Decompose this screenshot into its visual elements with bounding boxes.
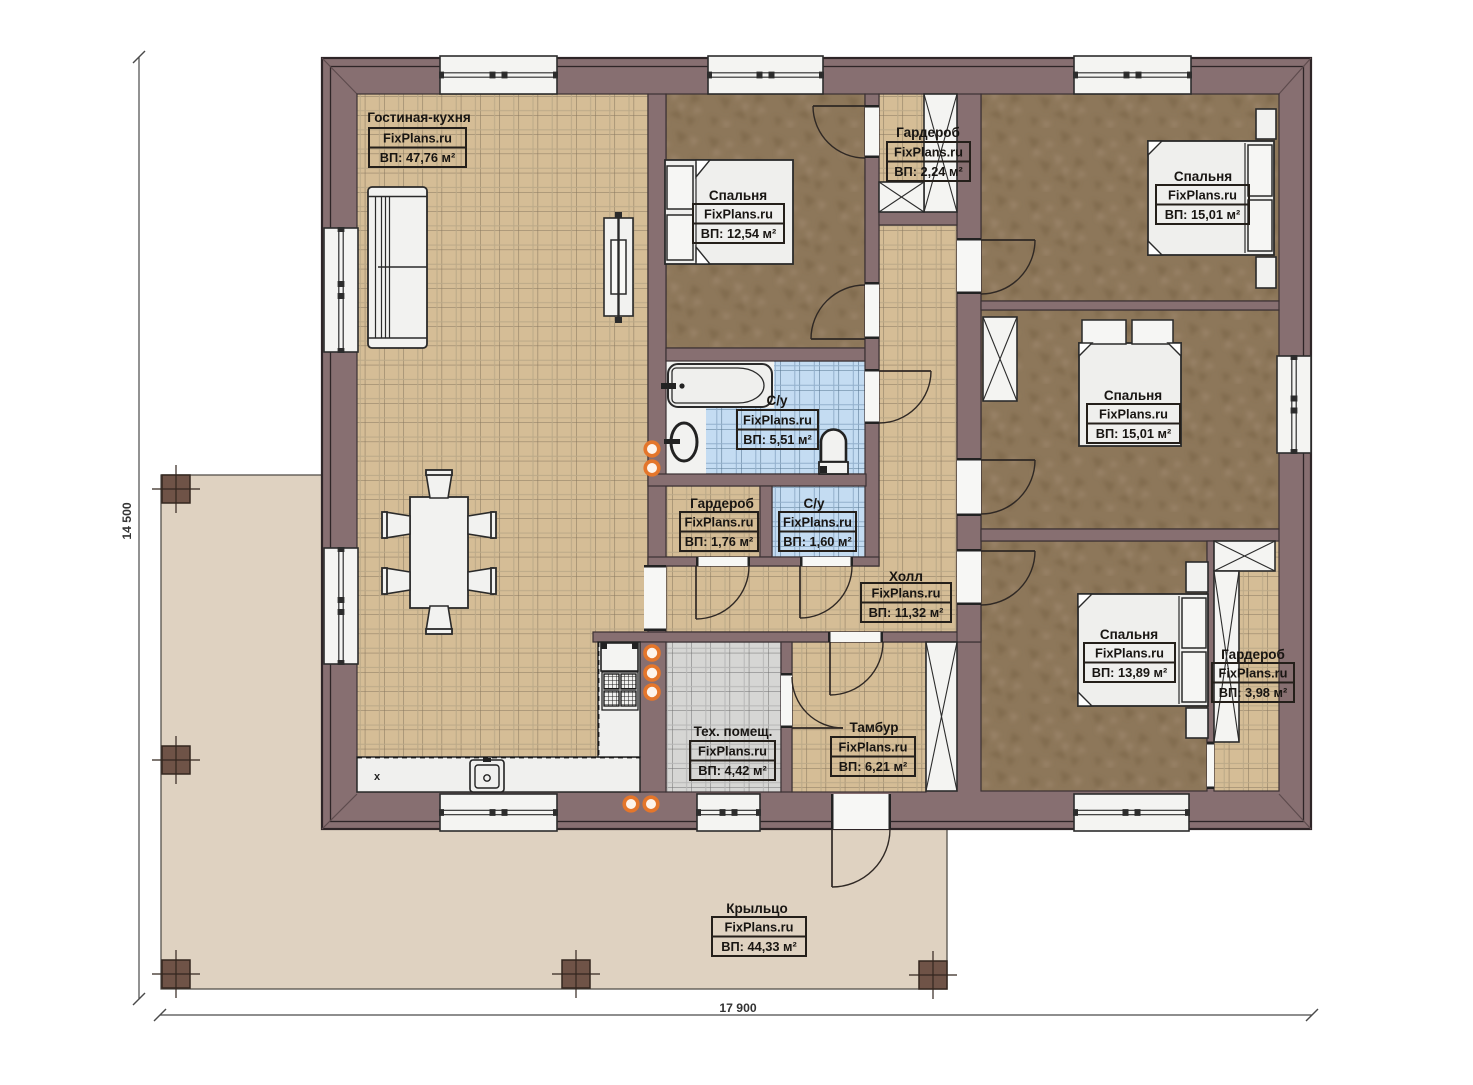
svg-text:FixPlans.ru: FixPlans.ru xyxy=(839,739,908,754)
svg-text:ВП: 44,33 м²: ВП: 44,33 м² xyxy=(721,939,797,954)
svg-text:ВП: 4,42 м²: ВП: 4,42 м² xyxy=(698,763,766,778)
svg-text:FixPlans.ru: FixPlans.ru xyxy=(1219,665,1288,680)
svg-text:Крыльцо: Крыльцо xyxy=(726,901,787,916)
svg-text:Тамбур: Тамбур xyxy=(850,720,899,735)
svg-text:ВП: 1,76 м²: ВП: 1,76 м² xyxy=(685,534,753,549)
svg-text:ВП: 13,89 м²: ВП: 13,89 м² xyxy=(1092,665,1168,680)
svg-text:С/у: С/у xyxy=(803,496,825,511)
svg-text:Гардероб: Гардероб xyxy=(690,496,754,511)
svg-text:FixPlans.ru: FixPlans.ru xyxy=(383,130,452,145)
svg-text:FixPlans.ru: FixPlans.ru xyxy=(1099,406,1168,421)
svg-text:Спальня: Спальня xyxy=(1104,388,1162,403)
svg-text:FixPlans.ru: FixPlans.ru xyxy=(698,743,767,758)
svg-text:17 900: 17 900 xyxy=(719,1001,756,1015)
svg-text:Гостиная-кухня: Гостиная-кухня xyxy=(367,110,470,125)
svg-text:FixPlans.ru: FixPlans.ru xyxy=(872,585,941,600)
svg-text:FixPlans.ru: FixPlans.ru xyxy=(704,206,773,221)
svg-text:ВП: 2,24 м²: ВП: 2,24 м² xyxy=(894,164,962,179)
svg-text:FixPlans.ru: FixPlans.ru xyxy=(725,919,794,934)
svg-text:ВП: 11,32 м²: ВП: 11,32 м² xyxy=(869,605,944,620)
svg-text:FixPlans.ru: FixPlans.ru xyxy=(685,514,754,529)
svg-text:FixPlans.ru: FixPlans.ru xyxy=(743,412,812,427)
svg-text:Гардероб: Гардероб xyxy=(896,125,960,140)
svg-text:ВП: 1,60 м²: ВП: 1,60 м² xyxy=(783,534,851,549)
svg-text:Тех. помещ.: Тех. помещ. xyxy=(694,724,773,739)
svg-text:ВП: 15,01 м²: ВП: 15,01 м² xyxy=(1165,207,1241,222)
svg-text:14 500: 14 500 xyxy=(120,502,134,539)
svg-text:FixPlans.ru: FixPlans.ru xyxy=(1168,187,1237,202)
svg-text:Спальня: Спальня xyxy=(709,188,767,203)
svg-text:С/у: С/у xyxy=(766,393,788,408)
svg-text:FixPlans.ru: FixPlans.ru xyxy=(783,514,852,529)
svg-text:ВП: 3,98 м²: ВП: 3,98 м² xyxy=(1219,685,1287,700)
svg-text:ВП: 47,76 м²: ВП: 47,76 м² xyxy=(380,150,456,165)
svg-text:Холл: Холл xyxy=(889,569,923,584)
svg-text:ВП: 15,01 м²: ВП: 15,01 м² xyxy=(1096,426,1172,441)
svg-text:FixPlans.ru: FixPlans.ru xyxy=(1095,645,1164,660)
svg-text:ВП: 12,54 м²: ВП: 12,54 м² xyxy=(701,226,777,241)
svg-text:Гардероб: Гардероб xyxy=(1221,647,1285,662)
svg-text:FixPlans.ru: FixPlans.ru xyxy=(894,144,963,159)
svg-text:ВП: 6,21 м²: ВП: 6,21 м² xyxy=(839,759,907,774)
svg-text:x: x xyxy=(374,771,381,783)
svg-text:Спальня: Спальня xyxy=(1174,169,1232,184)
svg-text:Спальня: Спальня xyxy=(1100,627,1158,642)
svg-text:ВП: 5,51 м²: ВП: 5,51 м² xyxy=(743,432,811,447)
